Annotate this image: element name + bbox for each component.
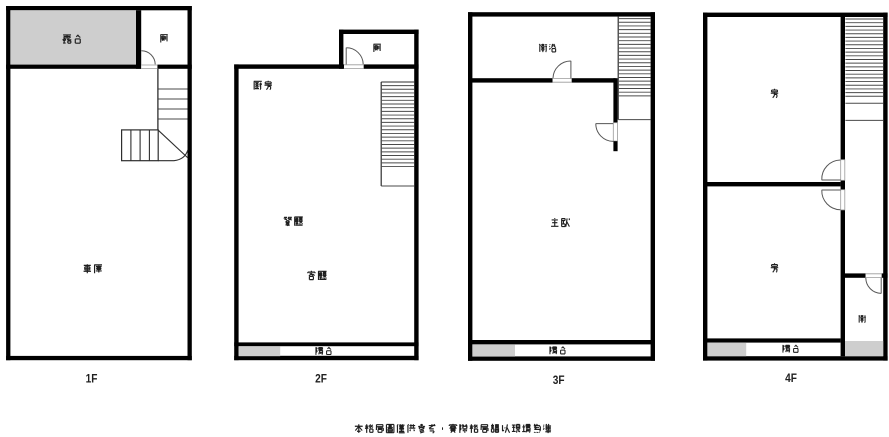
svg-text:4F: 4F [785,372,797,385]
svg-text:3F: 3F [553,374,565,387]
svg-text:1F: 1F [86,373,98,386]
svg-text:2F: 2F [315,373,327,386]
